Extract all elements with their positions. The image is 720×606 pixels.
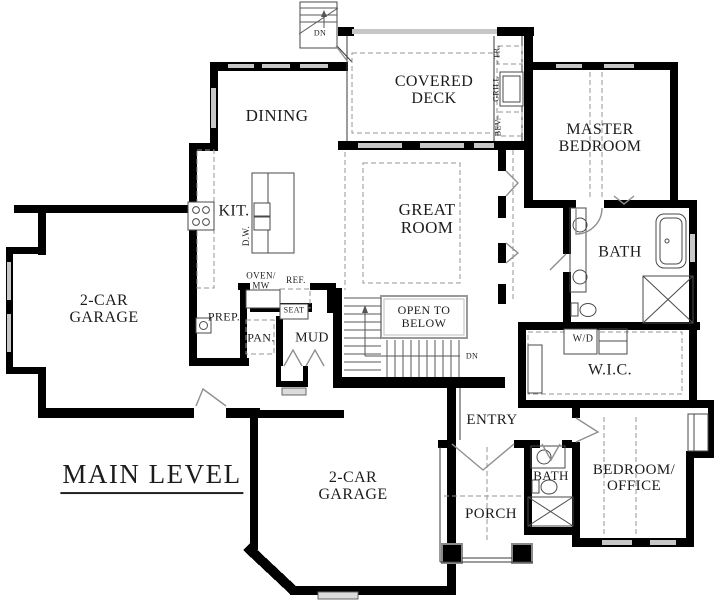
oven-cabinet <box>246 290 280 308</box>
annotation-dn-deck: DN <box>314 30 326 39</box>
room-label-entry: ENTRY <box>466 412 517 428</box>
room-label-covered-deck: COVERED DECK <box>395 73 473 107</box>
grill-fixture <box>500 72 523 106</box>
garage-step <box>318 592 358 599</box>
room-label-great-room: GREAT ROOM <box>399 201 456 237</box>
master-shower <box>643 276 693 323</box>
kitchen-island <box>252 173 294 253</box>
master-vanity <box>570 208 587 292</box>
annotation-grill: GRILL <box>493 76 502 102</box>
annotation-oven-mw: OVEN/ MW <box>246 271 276 290</box>
annotation-wd: W/D <box>573 335 594 346</box>
bedroom-closet <box>688 414 708 451</box>
annotation-ref: REF. <box>286 276 306 286</box>
room-label-wic: W.I.C. <box>588 361 632 378</box>
room-label-bath2: BATH <box>533 469 569 483</box>
room-label-mud: MUD <box>295 332 329 347</box>
mud-closet-door-right <box>306 350 324 366</box>
entry-door <box>452 444 514 470</box>
mud-step <box>282 388 306 395</box>
annotation-dn-stairs: DN <box>466 353 478 362</box>
deck-landing-door <box>336 46 348 62</box>
bath2-sink <box>531 446 565 468</box>
room-label-master-bedroom: MASTER BEDROOM <box>559 121 642 155</box>
room-label-garage-left: 2-CAR GARAGE <box>69 292 138 326</box>
great-room-deck-door <box>506 171 518 196</box>
room-label-bedroom-office: BEDROOM/ OFFICE <box>593 462 675 494</box>
room-label-porch: PORCH <box>465 506 517 522</box>
garage-service-door <box>196 389 226 406</box>
hall-deck-door <box>506 243 518 263</box>
plan-title: MAIN LEVEL <box>60 460 243 494</box>
mud-closet-door-left <box>284 350 302 366</box>
floor-plan: COVERED DECK DINING MASTER BEDROOM KIT. … <box>0 0 720 606</box>
room-label-master-bath: BATH <box>598 243 641 260</box>
bath2-shower <box>528 497 573 526</box>
room-label-prep: PREP. <box>208 311 240 324</box>
annotation-seat: SEAT <box>284 307 305 316</box>
room-label-dining: DINING <box>246 107 309 125</box>
room-label-kitchen: KIT. <box>218 202 249 219</box>
master-toilet <box>571 303 596 317</box>
master-bath-door <box>576 208 602 234</box>
room-label-garage-lower: 2-CAR GARAGE <box>318 469 387 503</box>
annotation-tr: TR. <box>494 45 503 58</box>
range <box>188 202 214 230</box>
annotation-dw: D.W. <box>242 226 252 246</box>
room-label-pantry: PAN. <box>247 332 275 345</box>
deck-stairs <box>299 2 338 48</box>
annotation-bev: BEV. <box>495 118 504 137</box>
annotation-open-to-below: OPEN TO BELOW <box>398 304 451 330</box>
master-tub <box>656 214 686 268</box>
